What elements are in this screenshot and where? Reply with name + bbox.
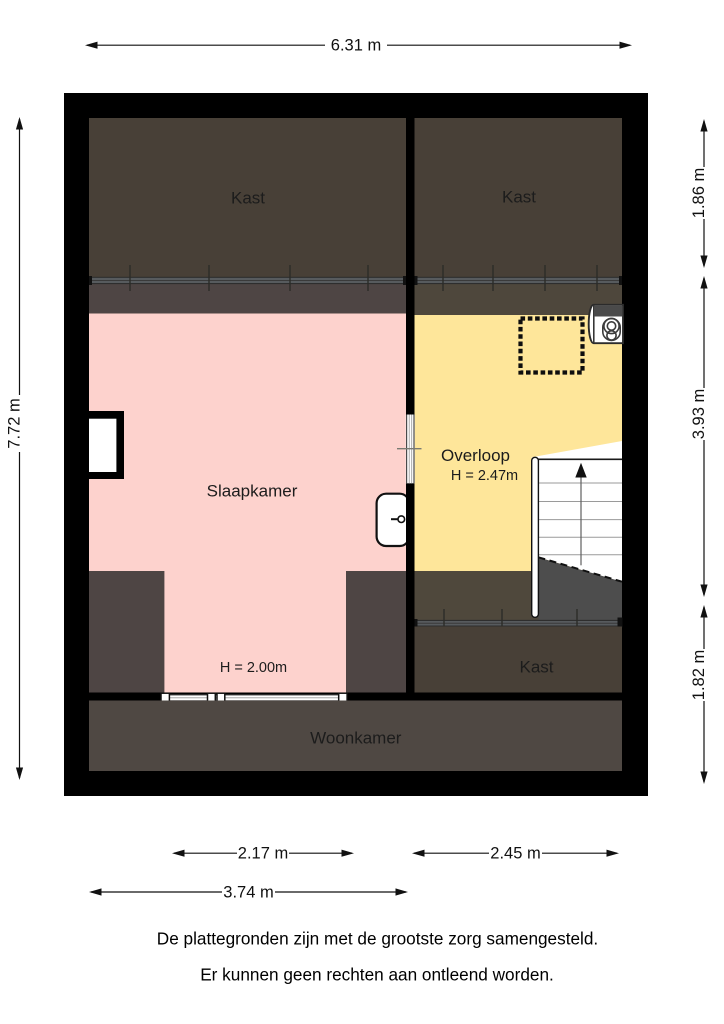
svg-text:H = 2.00m: H = 2.00m [220,660,287,676]
svg-text:De plattegronden zijn met de g: De plattegronden zijn met de grootste zo… [157,929,598,949]
svg-text:Kast: Kast [519,658,553,677]
svg-text:H = 2.47m: H = 2.47m [451,468,518,484]
svg-text:3.93 m: 3.93 m [690,389,708,439]
svg-text:Er kunnen geen rechten aan ont: Er kunnen geen rechten aan ontleend word… [200,965,554,985]
svg-text:2.17 m: 2.17 m [238,845,288,863]
svg-text:2.45 m: 2.45 m [490,845,540,863]
svg-text:1.82 m: 1.82 m [690,650,708,700]
svg-text:3.74 m: 3.74 m [223,884,273,902]
svg-text:Woonkamer: Woonkamer [310,729,402,748]
svg-text:6.31 m: 6.31 m [331,37,381,55]
svg-text:Slaapkamer: Slaapkamer [207,482,298,501]
svg-text:Overloop: Overloop [441,446,510,465]
svg-text:7.72 m: 7.72 m [6,398,24,448]
svg-text:Kast: Kast [231,189,265,208]
svg-text:1.86 m: 1.86 m [690,168,708,218]
svg-text:Kast: Kast [502,188,536,207]
